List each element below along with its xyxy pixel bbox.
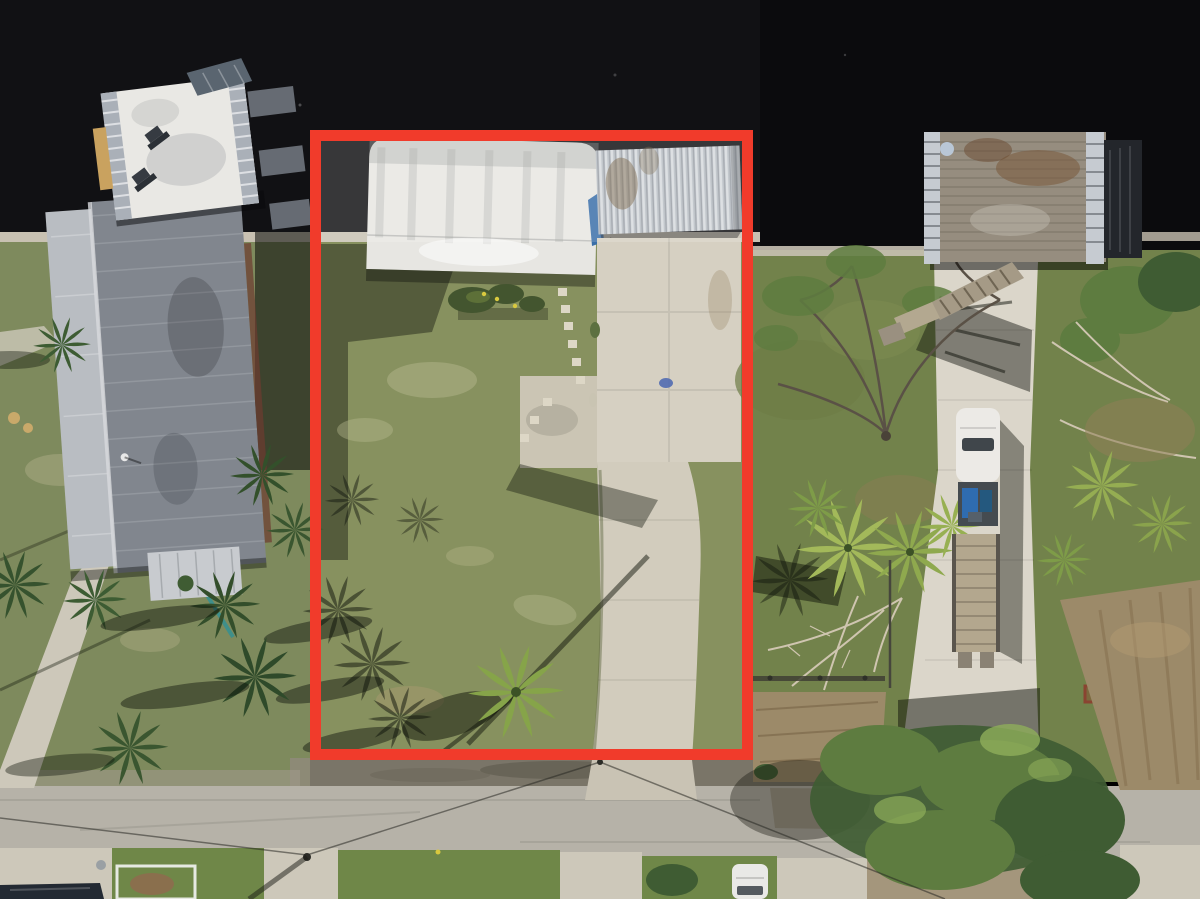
trailer-ramp [980,652,994,668]
flatbed-trailer [952,534,1000,668]
white-car [732,864,768,899]
front-lawn [338,850,560,899]
windshield [737,886,763,895]
louver-railing [924,132,940,264]
wheel-item [96,860,106,870]
satellite-dish [940,142,954,156]
aerial-photo-canvas [0,0,1200,899]
walkway-section [269,199,312,230]
trailer-ramp [958,652,972,668]
driveway-apron [264,848,338,899]
driveway-apron [777,858,867,899]
bush [646,864,698,896]
pickup-truck [956,408,1000,526]
lot-water-highlight [310,130,753,242]
left-house [45,191,276,606]
windshield [962,438,994,451]
truck-shadow [1000,420,1024,664]
paint-splotch [659,378,673,388]
walkway-section [259,145,306,176]
walkway-section [247,86,296,117]
front-lawn [112,848,264,899]
aerial-photo [0,0,1200,899]
driveway-apron [560,852,642,899]
dark-car [0,883,104,899]
louver-railing [1086,132,1104,264]
